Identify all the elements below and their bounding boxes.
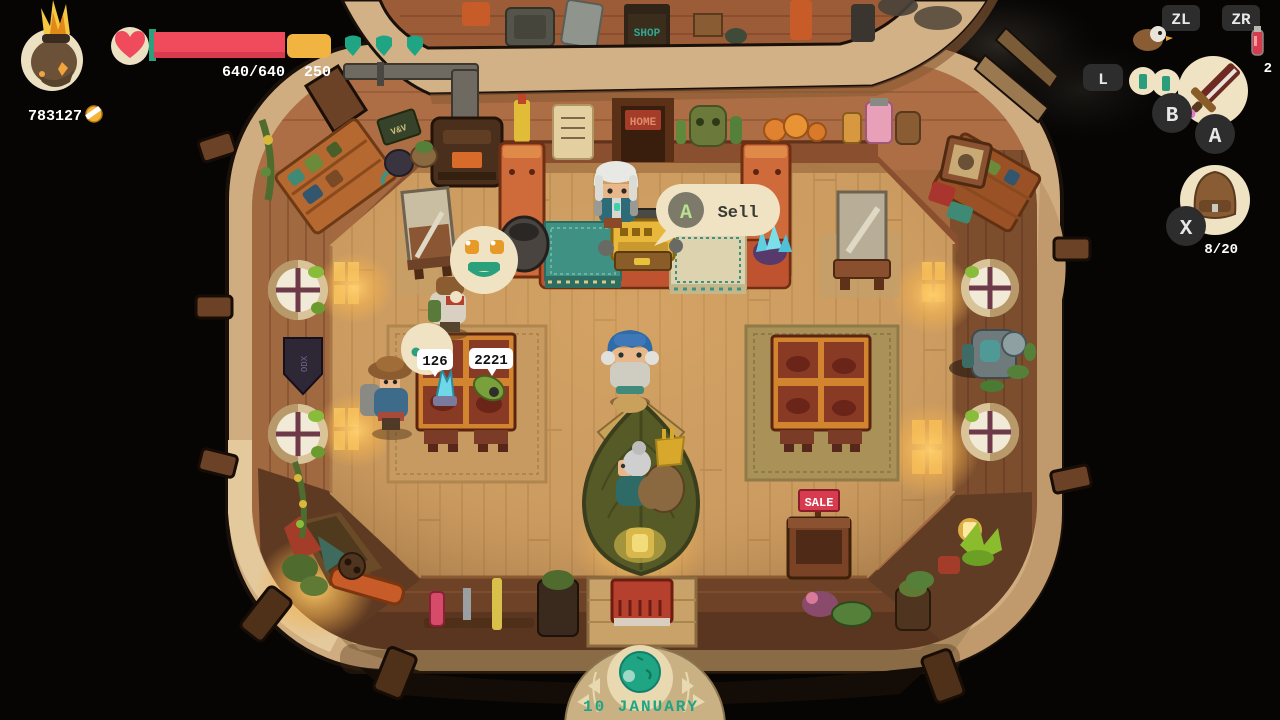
svg-text:SHOP: SHOP [634, 28, 661, 40]
svg-text:2221: 2221 [474, 353, 508, 369]
svg-text:250: 250 [304, 64, 331, 81]
svg-text:ODX: ODX [300, 355, 310, 372]
svg-text:A: A [1209, 126, 1222, 149]
svg-text:ZR: ZR [1231, 11, 1251, 29]
svg-text:HOME: HOME [630, 117, 657, 129]
svg-text:2: 2 [1264, 61, 1272, 77]
svg-text:X: X [1180, 218, 1193, 241]
svg-text:126: 126 [422, 354, 447, 370]
svg-text:L: L [1098, 71, 1108, 89]
svg-text:B: B [1166, 105, 1179, 128]
svg-text:783127: 783127 [28, 108, 82, 125]
svg-text:ZL: ZL [1171, 11, 1190, 29]
svg-text:Sell: Sell [718, 204, 759, 223]
svg-text:640/640: 640/640 [222, 64, 285, 81]
svg-text:10 JANUARY: 10 JANUARY [583, 698, 699, 716]
svg-text:SALE: SALE [805, 496, 834, 510]
svg-text:A: A [680, 202, 692, 225]
svg-text:8/20: 8/20 [1204, 242, 1238, 258]
